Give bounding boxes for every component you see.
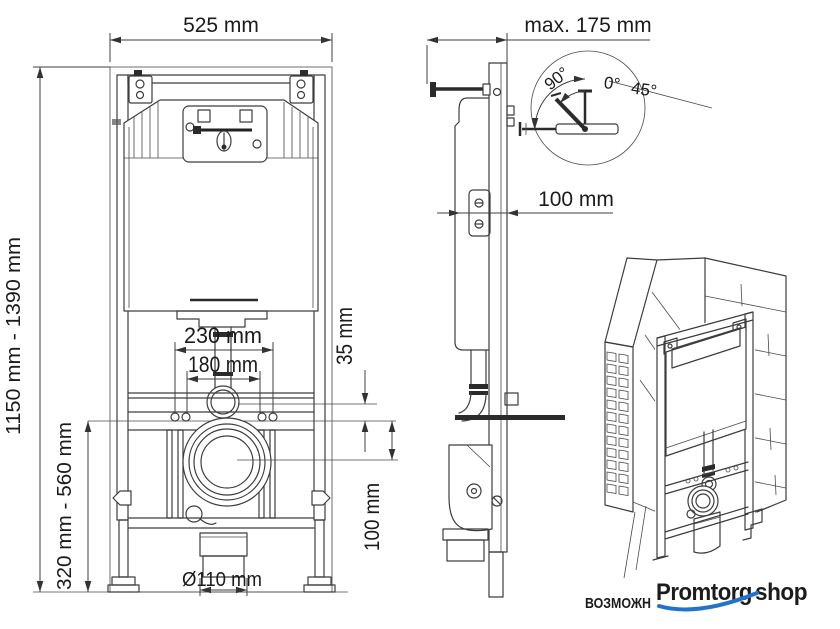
angle-45-label: 45°: [630, 78, 658, 100]
dim-side-depth-label: 100 mm: [538, 188, 614, 211]
label-sticker: [112, 119, 121, 125]
iso-frame: [653, 310, 762, 560]
footer-note: ВОЗМОЖН: [585, 595, 651, 612]
dim-height-range-label: 1150 mm - 1390 mm: [3, 237, 25, 435]
side-flush-pipe: [459, 350, 488, 421]
dim-fix-spacing-label: 180 mm: [188, 352, 258, 377]
dim-drain-offset-label: 100 mm: [361, 483, 384, 551]
angle-detail: 90° 0° 45°: [520, 51, 712, 165]
dim-width: 525 mm: [110, 14, 332, 62]
dim-width-label: 525 mm: [183, 14, 259, 37]
side-bracket-right: [312, 491, 330, 505]
side-bracket-left: [113, 491, 131, 505]
drain-opening: [183, 418, 271, 524]
dim-max-depth: max. 175 mm: [427, 14, 652, 84]
angle-0-label: 0°: [603, 73, 622, 94]
side-foot: [489, 552, 503, 597]
dim-drain-offset: 100 mm: [361, 421, 392, 551]
dim-leg-range: 320 mm - 560 mm: [54, 421, 88, 592]
dim-inlet-spacing-label: 230 mm: [184, 323, 262, 348]
installation-isometric: [605, 258, 786, 578]
dim-flush-offset-label: 35 mm: [332, 307, 357, 365]
fixing-studs: [455, 415, 565, 420]
dim-leg-range-label: 320 mm - 560 mm: [54, 422, 76, 590]
access-panel: [183, 106, 267, 162]
dim-max-depth-label: max. 175 mm: [524, 14, 651, 37]
technical-drawing: 525 mm 1150 mm - 1390 mm 320 mm - 560 mm…: [0, 0, 840, 629]
drawing-canvas: 525 mm 1150 mm - 1390 mm 320 mm - 560 mm…: [0, 0, 840, 629]
footer: ВОЗМОЖН Promtorg shop: [585, 579, 807, 612]
angle-90-label: 90°: [541, 63, 573, 94]
brand-name-part2: shop: [755, 579, 807, 606]
iso-block-column: [605, 258, 657, 578]
detail-circle: [531, 51, 645, 165]
anchor-rod: [430, 82, 490, 97]
top-crossbar: [128, 75, 314, 83]
brand-logo: Promtorg shop: [656, 579, 807, 609]
side-view: [430, 63, 565, 597]
dim-drain-diameter-label: Ø110 mm: [182, 569, 262, 591]
